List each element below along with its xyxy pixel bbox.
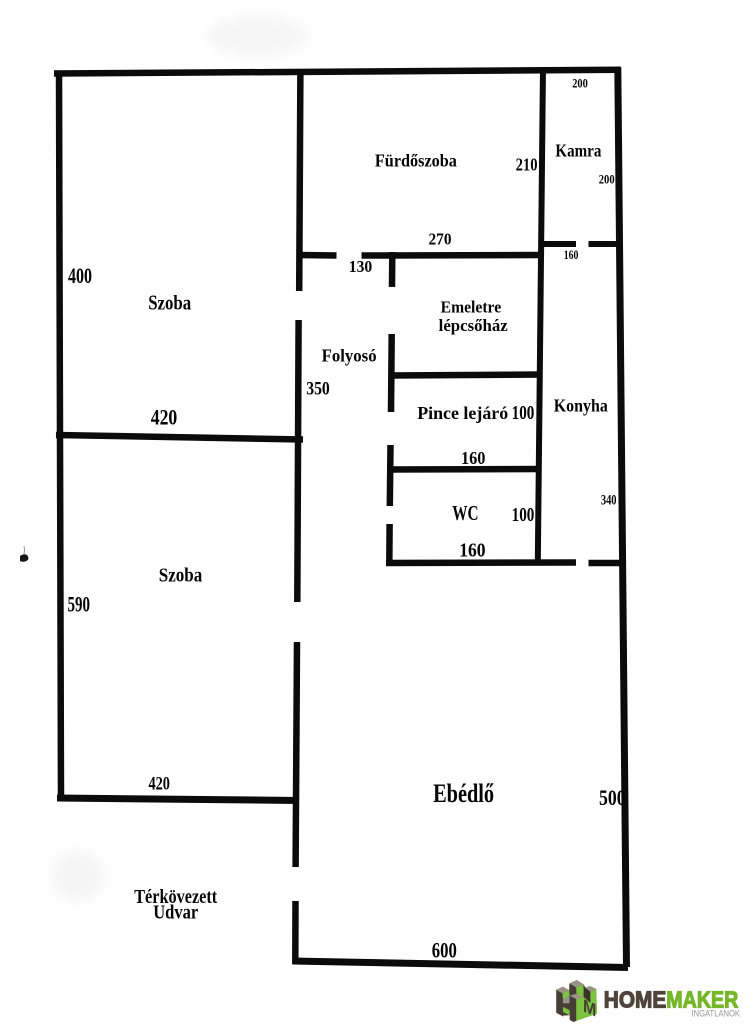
svg-text:200: 200 xyxy=(572,77,588,91)
svg-text:Folyosó: Folyosó xyxy=(322,346,377,366)
svg-text:HOME: HOME xyxy=(604,987,667,1013)
svg-text:Fürdőszoba: Fürdőszoba xyxy=(375,150,457,170)
svg-text:210: 210 xyxy=(516,154,538,174)
svg-text:270: 270 xyxy=(429,229,452,248)
svg-text:Konyha: Konyha xyxy=(554,396,608,416)
svg-text:100: 100 xyxy=(512,402,535,424)
svg-text:600: 600 xyxy=(432,938,457,963)
svg-text:200: 200 xyxy=(599,173,615,187)
svg-text:160: 160 xyxy=(564,247,579,262)
svg-text:Emeletre: Emeletre xyxy=(441,298,502,317)
svg-text:lépcsőház: lépcsőház xyxy=(439,316,508,335)
svg-text:340: 340 xyxy=(601,493,617,509)
svg-text:INGATLANOK: INGATLANOK xyxy=(692,1009,741,1019)
svg-text:590: 590 xyxy=(67,592,90,617)
svg-text:Szoba: Szoba xyxy=(148,291,191,315)
svg-text:160: 160 xyxy=(459,540,485,562)
svg-text:Szoba: Szoba xyxy=(159,566,203,587)
svg-text:130: 130 xyxy=(349,257,373,276)
svg-text:400: 400 xyxy=(68,263,92,288)
svg-text:Pince lejáró: Pince lejáró xyxy=(417,403,508,423)
svg-text:500: 500 xyxy=(599,785,626,810)
svg-text:420: 420 xyxy=(151,405,178,430)
svg-text:Udvar: Udvar xyxy=(153,903,198,924)
svg-text:WC: WC xyxy=(452,501,478,525)
svg-text:350: 350 xyxy=(306,379,330,400)
svg-text:100: 100 xyxy=(512,504,535,526)
svg-text:Kamra: Kamra xyxy=(555,141,601,161)
svg-text:160: 160 xyxy=(461,448,486,468)
svg-text:420: 420 xyxy=(148,775,170,795)
svg-text:Ebédlő: Ebédlő xyxy=(433,779,494,808)
